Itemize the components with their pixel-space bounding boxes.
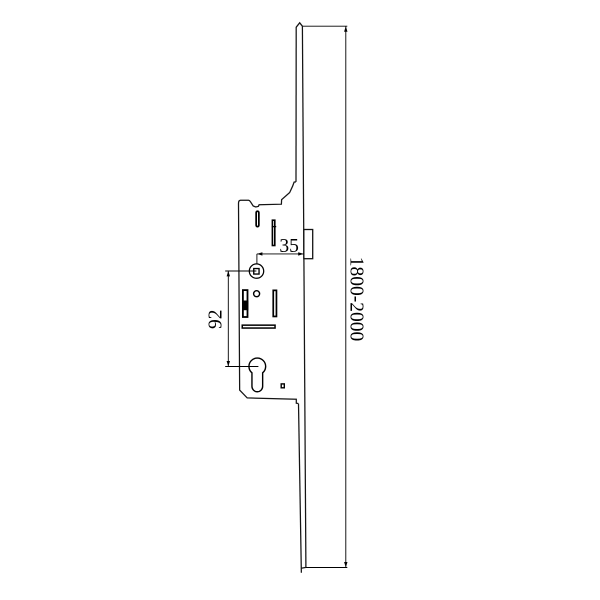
svg-text:92: 92 — [205, 309, 226, 329]
svg-text:1800-2000: 1800-2000 — [346, 257, 367, 342]
svg-text:35: 35 — [279, 236, 299, 257]
